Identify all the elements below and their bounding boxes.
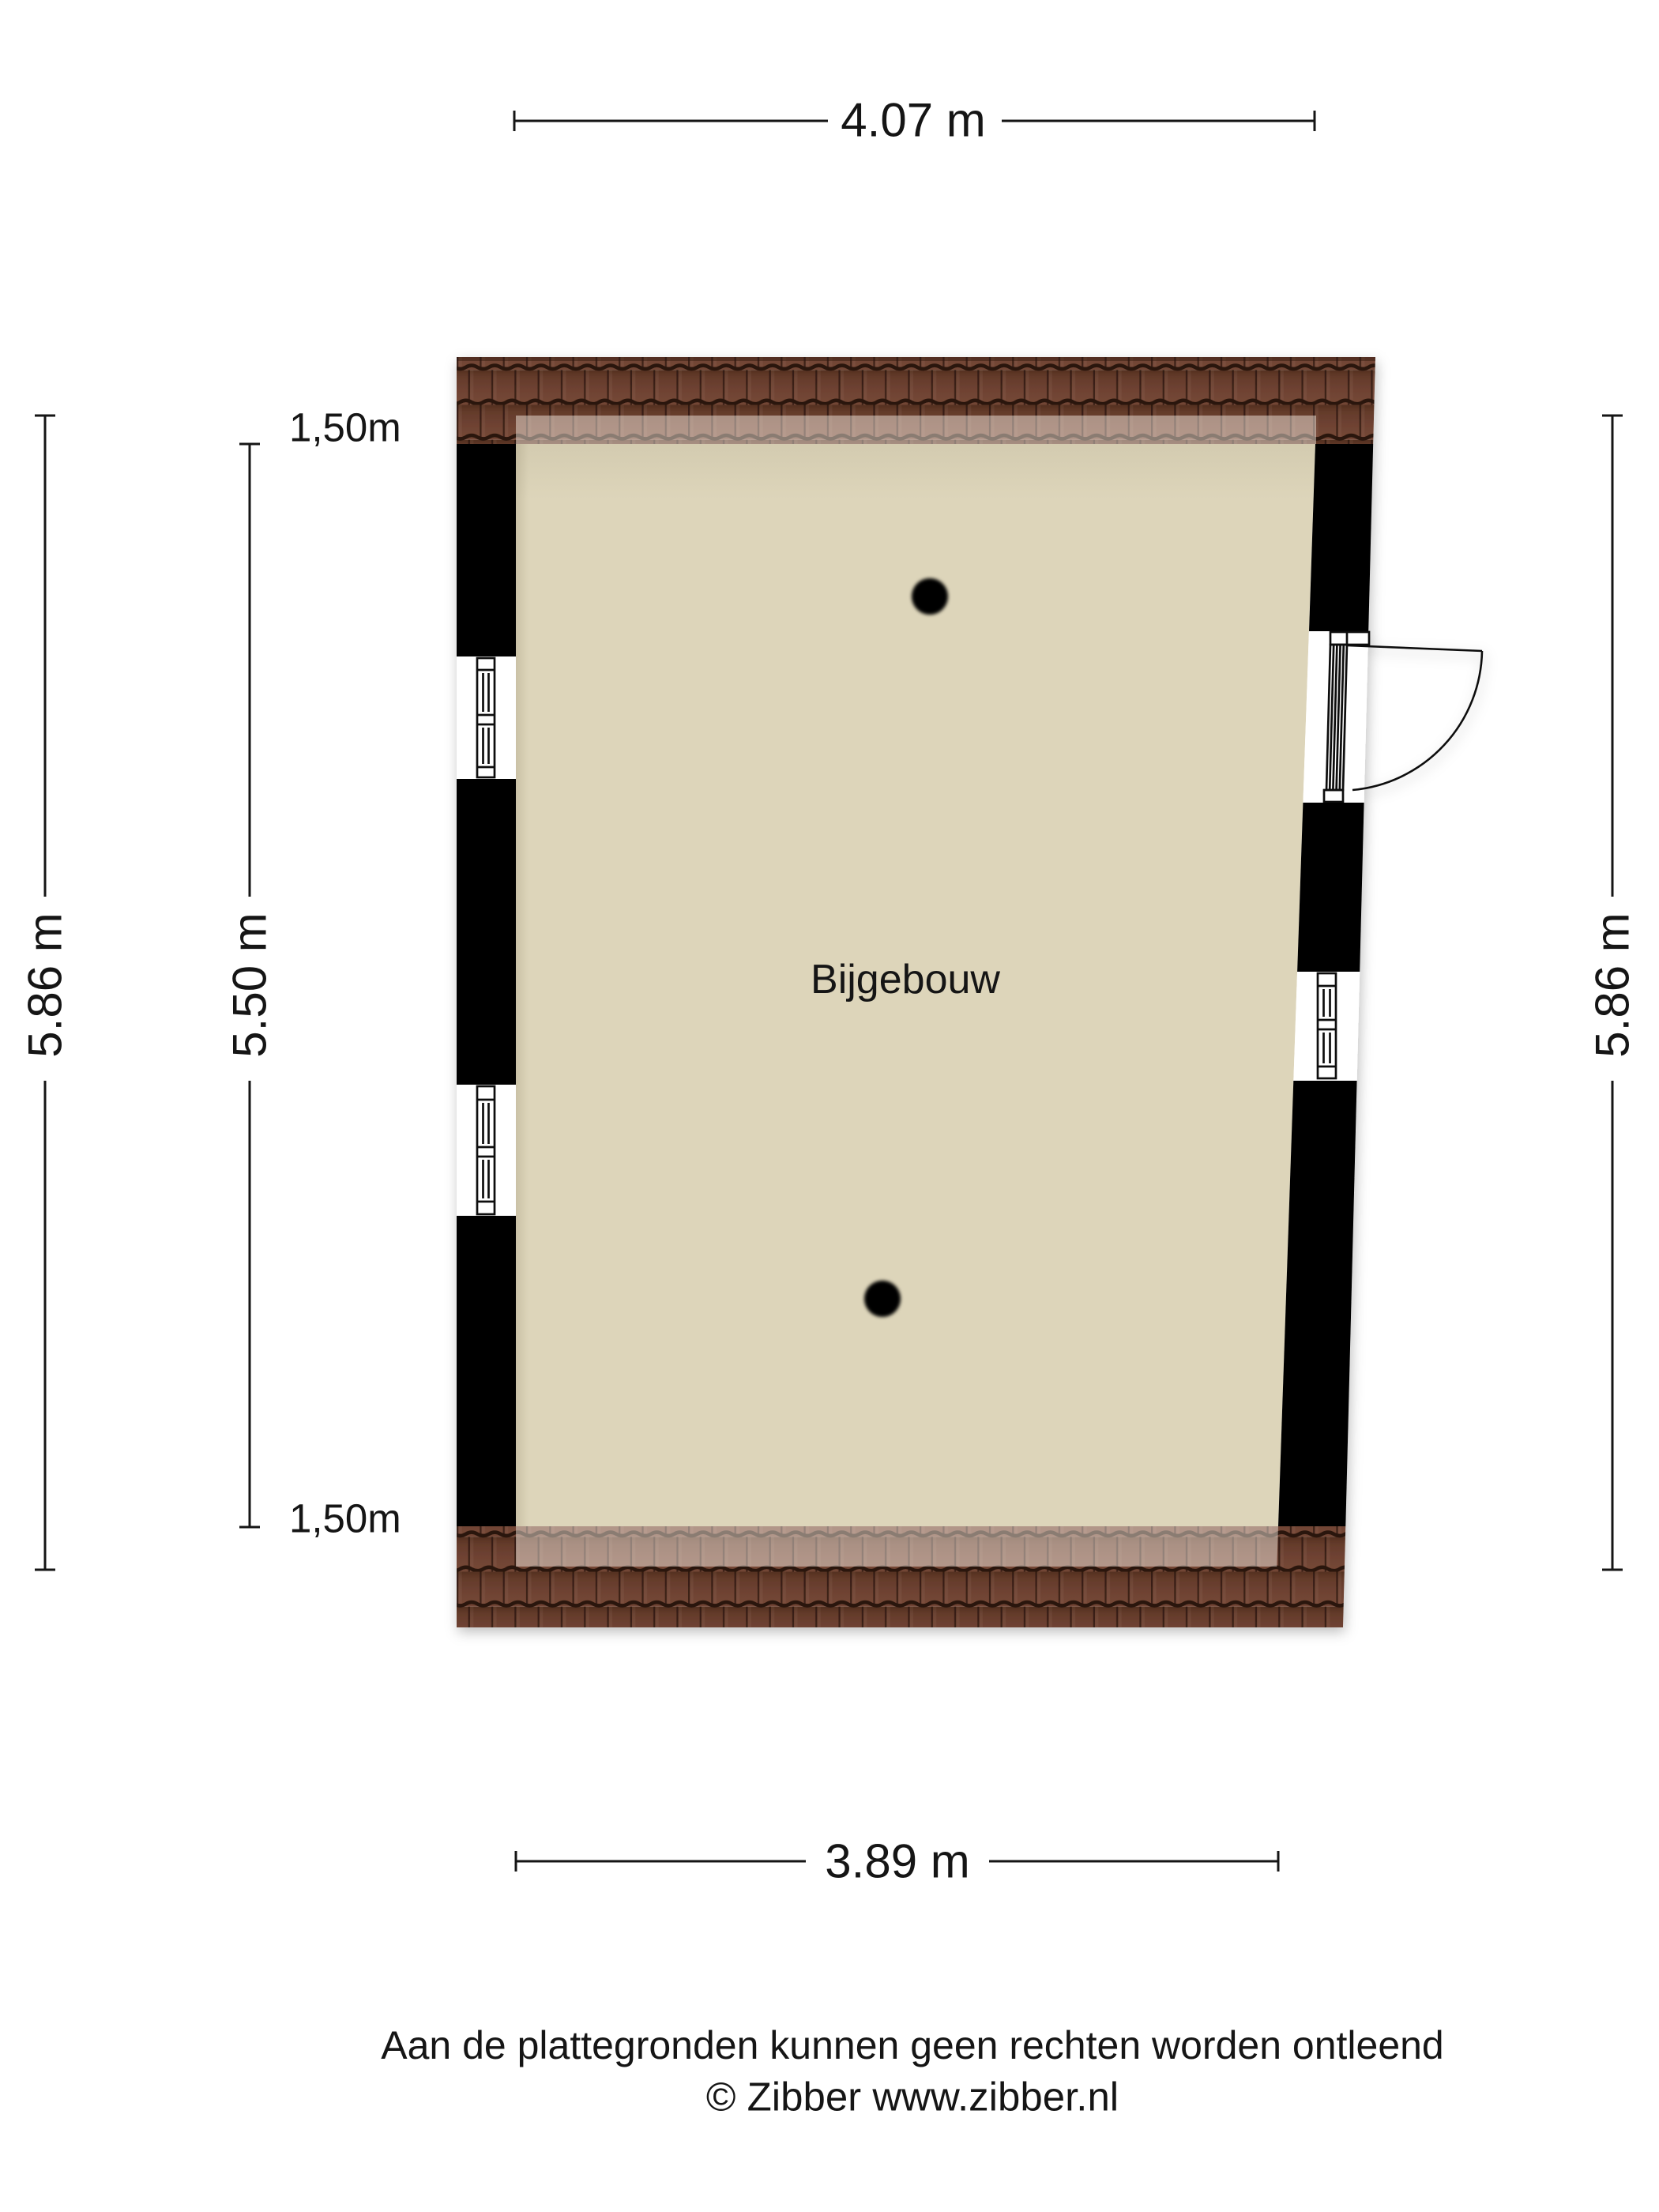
svg-text:4.07 m: 4.07 m xyxy=(841,94,985,147)
svg-text:Bijgebouw: Bijgebouw xyxy=(811,957,1000,1003)
svg-text:1,50m: 1,50m xyxy=(289,1496,401,1541)
svg-text:5.50 m: 5.50 m xyxy=(224,912,276,1057)
svg-text:5.86 m: 5.86 m xyxy=(1586,912,1639,1057)
svg-text:1,50m: 1,50m xyxy=(289,405,401,450)
svg-text:5.86 m: 5.86 m xyxy=(19,912,72,1057)
svg-text:3.89 m: 3.89 m xyxy=(825,1835,969,1888)
svg-text:Aan de plattegronden kunnen ge: Aan de plattegronden kunnen geen rechten… xyxy=(381,2023,1444,2067)
svg-text:© Zibber www.zibber.nl: © Zibber www.zibber.nl xyxy=(706,2075,1119,2120)
